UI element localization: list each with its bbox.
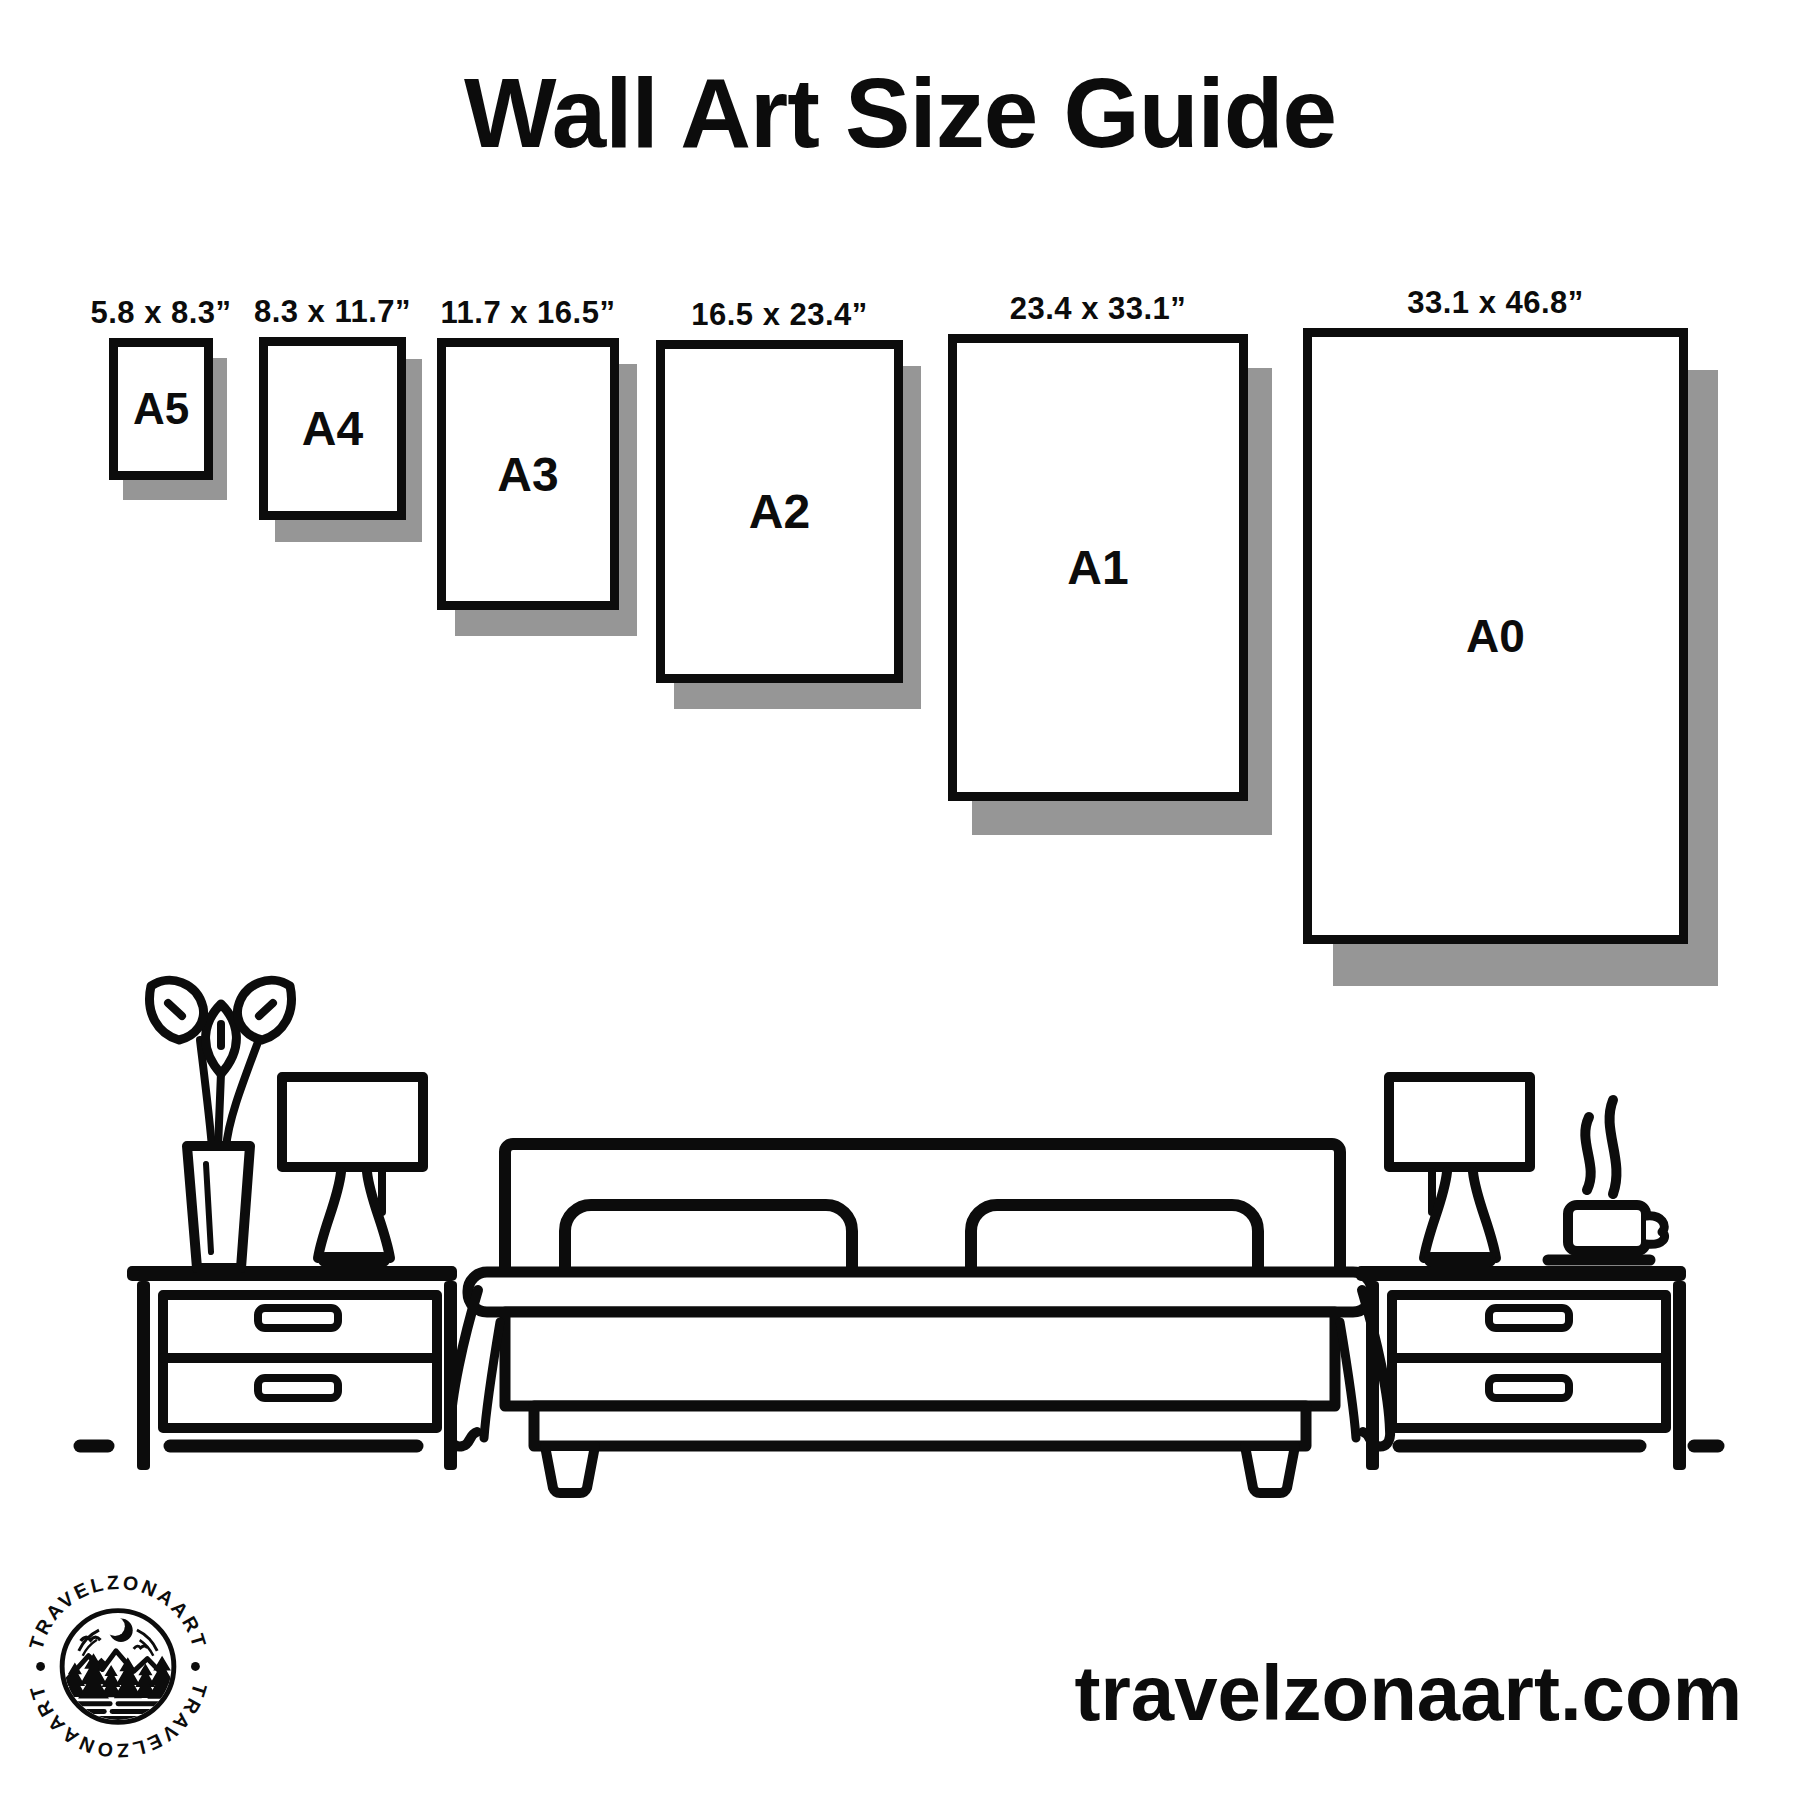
size-frame-a4: 8.3 x 11.7” A4 — [259, 337, 406, 520]
size-frame-a2: 16.5 x 23.4” A2 — [656, 340, 903, 683]
table-lamp-icon — [282, 1077, 423, 1267]
page-title: Wall Art Size Guide — [0, 64, 1800, 162]
table-lamp-icon — [1389, 1077, 1530, 1267]
size-dimensions-a4: 8.3 x 11.7” — [254, 294, 411, 330]
size-code-a4: A4 — [302, 401, 363, 456]
wall-art-size-guide-poster: Wall Art Size Guide 5.8 x 8.3” A5 8.3 x … — [0, 0, 1800, 1800]
bird-icon — [134, 1646, 148, 1649]
nightstand-icon — [127, 1266, 457, 1470]
size-code-a2: A2 — [749, 484, 810, 539]
size-frame-a1: 23.4 x 33.1” A1 — [948, 334, 1248, 801]
size-dimensions-a0: 33.1 x 46.8” — [1407, 285, 1584, 321]
steam-icon — [1585, 1117, 1590, 1190]
size-frame-a0: 33.1 x 46.8” A0 — [1303, 328, 1688, 944]
size-code-a1: A1 — [1067, 540, 1128, 595]
website-url: travelzonaart.com — [1074, 1648, 1742, 1739]
size-dimensions-a3: 11.7 x 16.5” — [441, 295, 616, 331]
size-dimensions-a5: 5.8 x 8.3” — [90, 295, 231, 331]
size-dimensions-a1: 23.4 x 33.1” — [1010, 291, 1187, 327]
bed-icon — [450, 1144, 1390, 1493]
size-frame-a5: 5.8 x 8.3” A5 — [109, 338, 213, 480]
steam-icon — [1610, 1100, 1617, 1194]
size-dimensions-a2: 16.5 x 23.4” — [691, 297, 868, 333]
plant-vase-icon — [150, 980, 292, 1268]
size-code-a3: A3 — [497, 447, 558, 502]
size-frame-a3: 11.7 x 16.5” A3 — [437, 338, 619, 610]
logo-dot — [191, 1662, 200, 1671]
pine-trees-icon — [63, 1653, 177, 1699]
size-code-a5: A5 — [133, 384, 189, 434]
size-code-a0: A0 — [1466, 609, 1525, 663]
logo-dot — [36, 1662, 45, 1671]
brand-logo: TRAVELZONAART TRAVELZONAART — [20, 1560, 216, 1772]
coffee-cup-icon — [1548, 1100, 1665, 1260]
nightstand-icon — [1356, 1266, 1686, 1470]
